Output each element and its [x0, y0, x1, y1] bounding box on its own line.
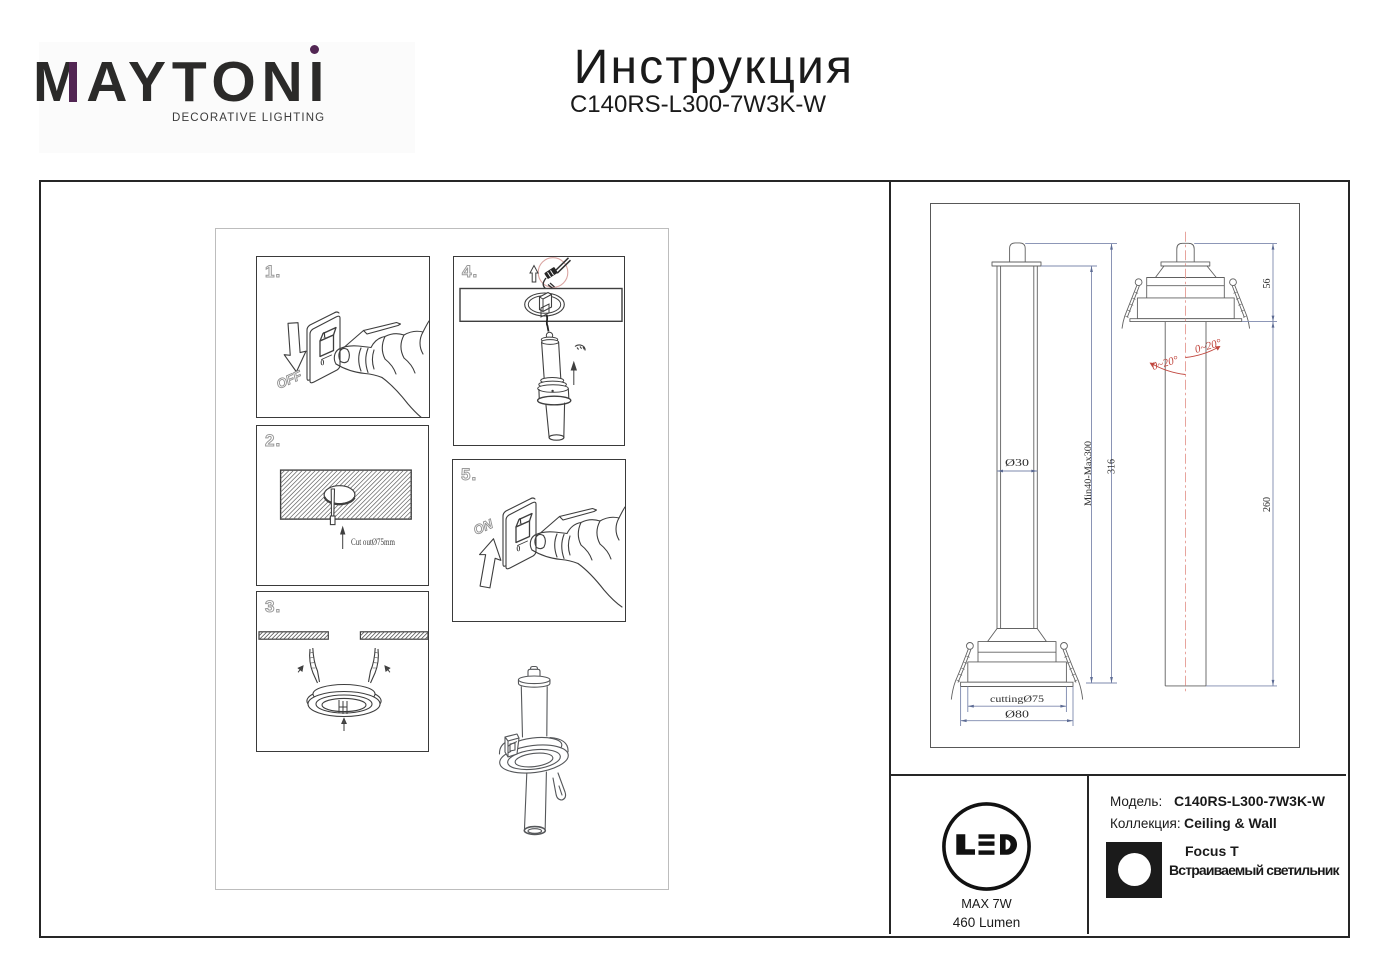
- svg-text:OFF: OFF: [274, 367, 305, 392]
- svg-text:Cut outØ75mm: Cut outØ75mm: [351, 537, 395, 547]
- svg-text:260: 260: [1262, 497, 1273, 512]
- svg-text:ON: ON: [471, 516, 495, 538]
- svg-text:56: 56: [1262, 279, 1273, 289]
- svg-text:Min40-Max300: Min40-Max300: [1084, 441, 1094, 506]
- svg-text:316: 316: [1107, 459, 1118, 474]
- svg-text:cuttingØ75: cuttingØ75: [990, 695, 1044, 705]
- svg-text:Ø30: Ø30: [1005, 458, 1029, 469]
- svg-text:Ø80: Ø80: [1005, 710, 1029, 721]
- svg-text:0~20°: 0~20°: [1194, 337, 1224, 356]
